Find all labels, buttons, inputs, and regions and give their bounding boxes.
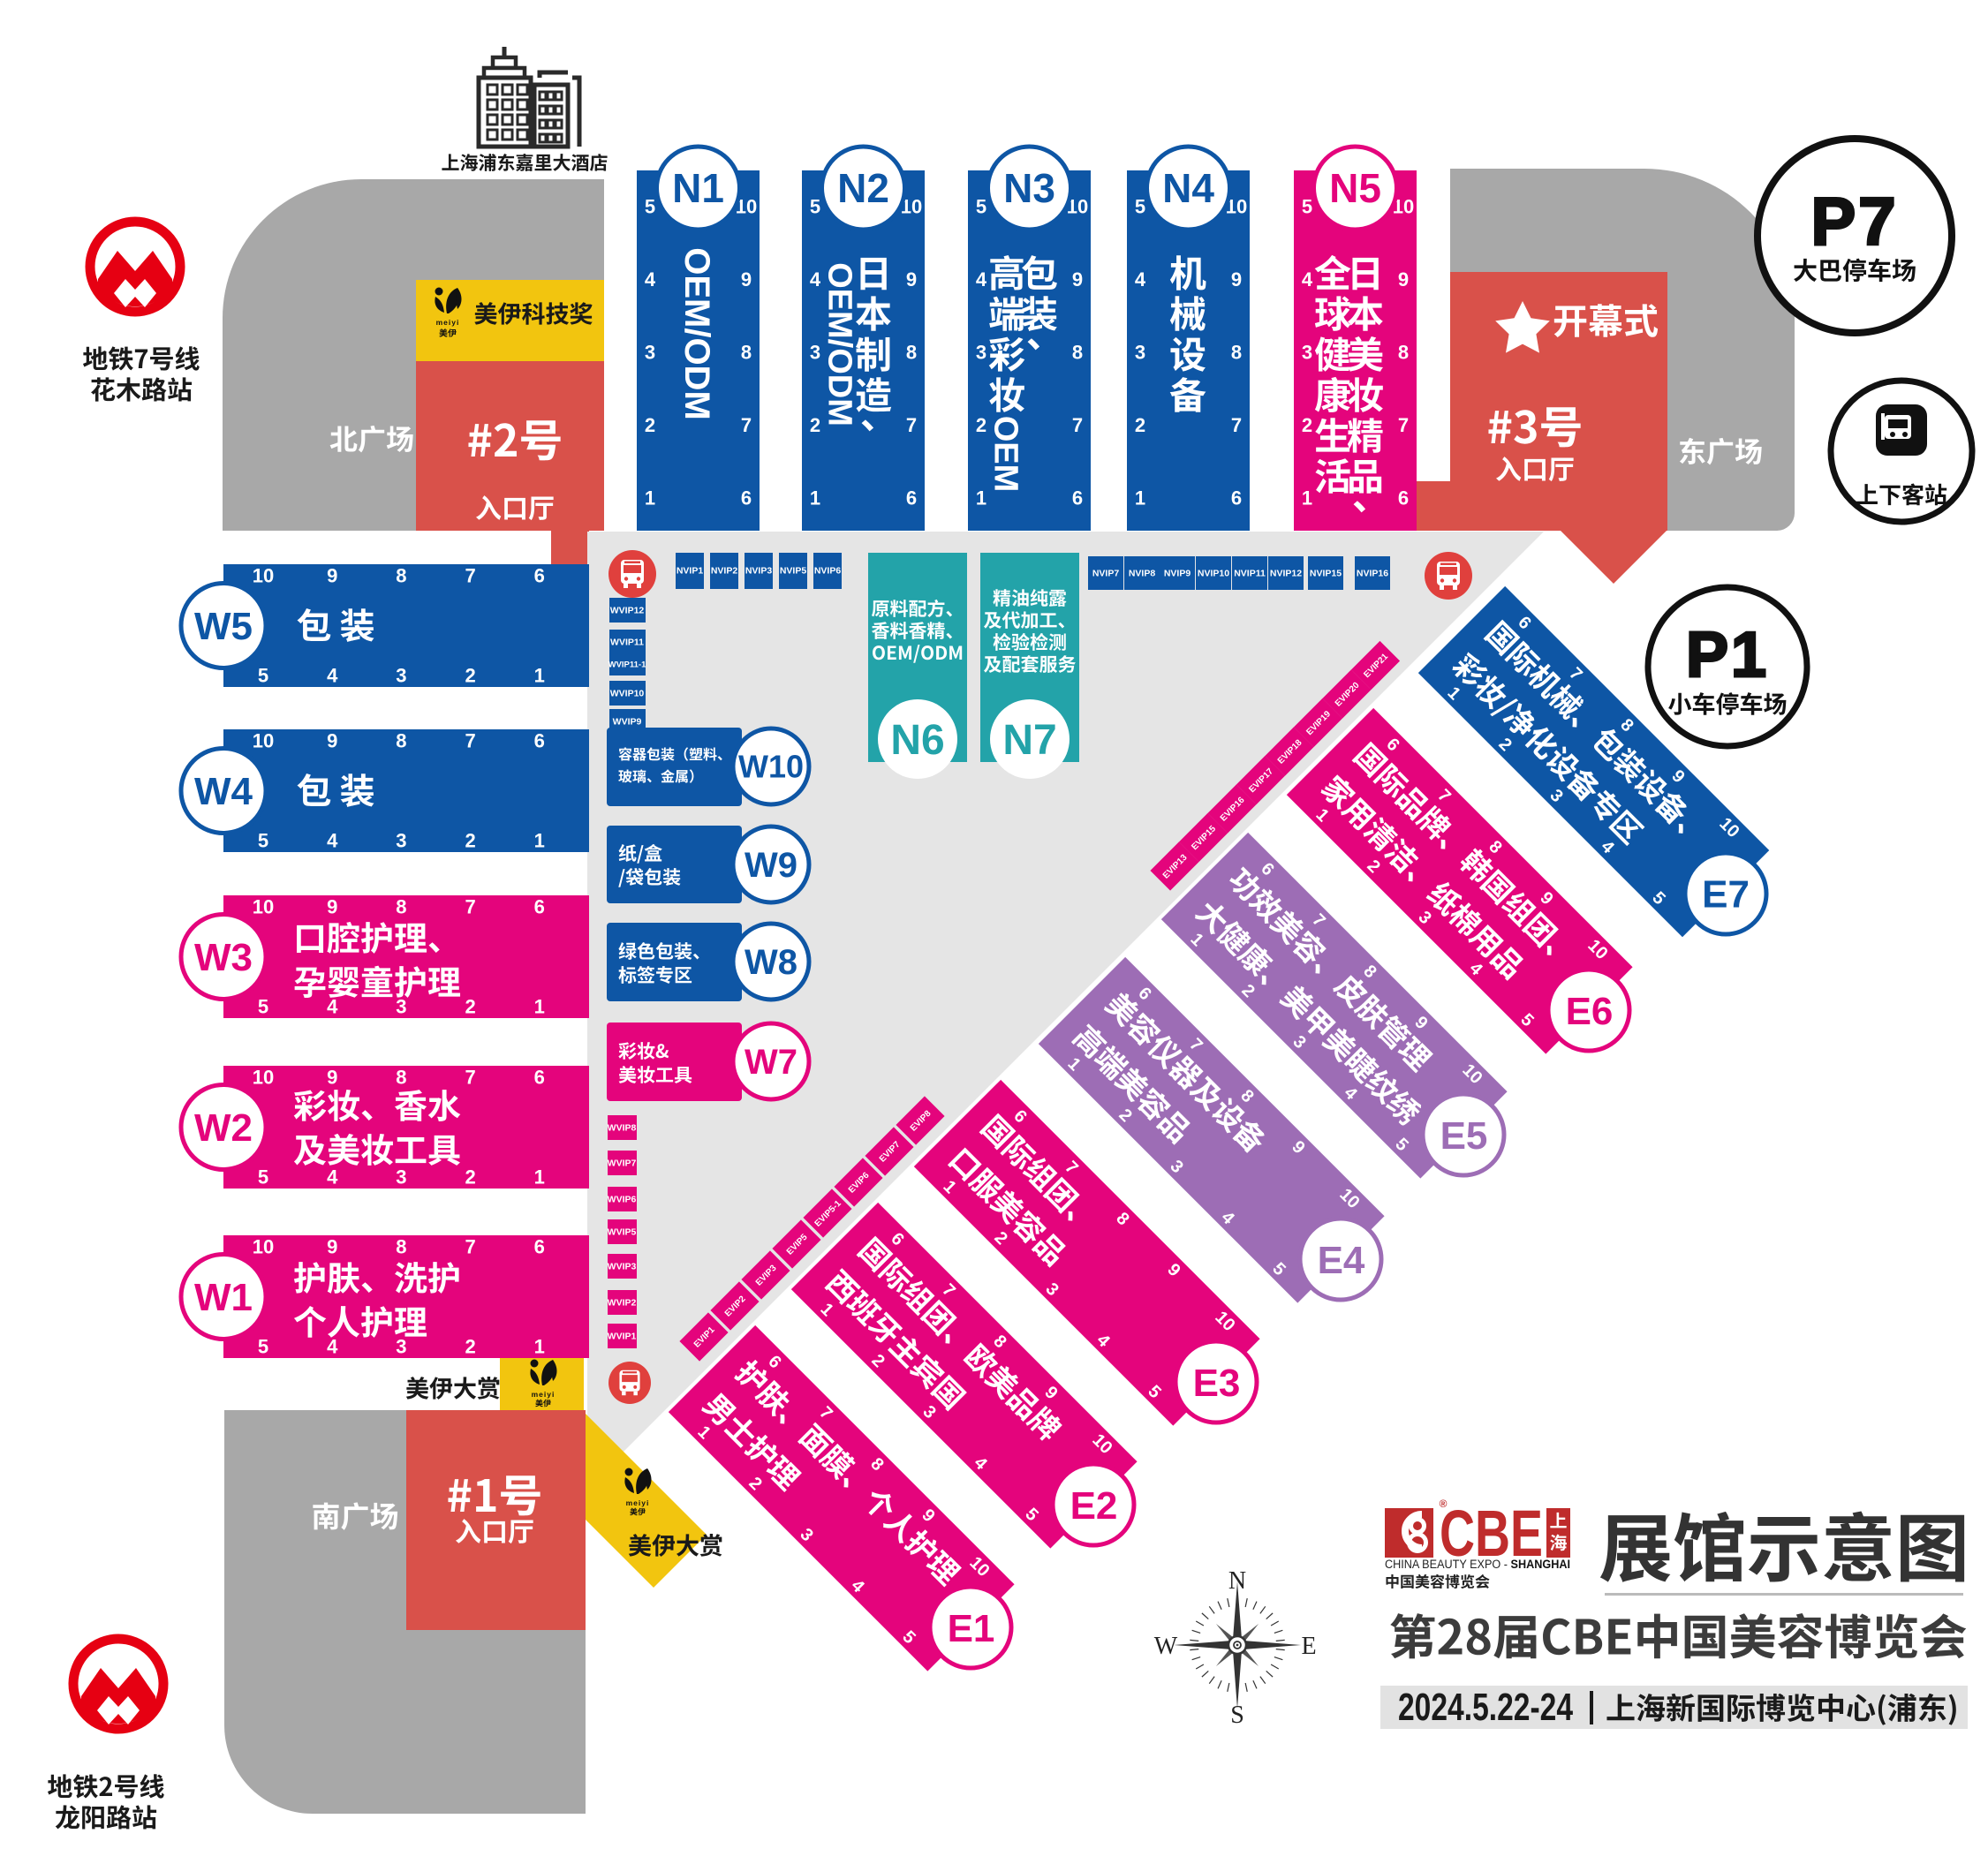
svg-text:WVIP6: WVIP6 [608, 1195, 637, 1205]
svg-text:N7: N7 [1002, 717, 1056, 764]
svg-text:7: 7 [1072, 414, 1083, 436]
svg-text:5: 5 [1135, 196, 1145, 218]
svg-text:W5: W5 [194, 605, 253, 648]
svg-text:3: 3 [1135, 342, 1145, 364]
svg-text:3: 3 [396, 830, 406, 852]
svg-text:W1: W1 [194, 1276, 253, 1319]
svg-text:W9: W9 [745, 846, 797, 885]
svg-text:N6: N6 [890, 717, 944, 764]
svg-text:1: 1 [810, 487, 820, 509]
svg-text:NVIP11: NVIP11 [1234, 569, 1266, 579]
svg-text:4: 4 [645, 268, 656, 291]
svg-text:2: 2 [1302, 414, 1312, 436]
svg-text:6: 6 [534, 896, 545, 918]
svg-text:S: S [1230, 1702, 1244, 1729]
svg-text:10: 10 [253, 565, 274, 587]
svg-text:WVIP10: WVIP10 [610, 689, 645, 699]
svg-text:5: 5 [1302, 196, 1312, 218]
svg-text:NVIP12: NVIP12 [1270, 569, 1302, 579]
svg-text:6: 6 [1231, 487, 1242, 509]
svg-text:P1: P1 [1686, 620, 1769, 691]
svg-text:NVIP16: NVIP16 [1357, 569, 1388, 579]
svg-text:N1: N1 [672, 165, 724, 211]
svg-text:E: E [1301, 1633, 1316, 1660]
svg-text:7: 7 [1231, 414, 1242, 436]
svg-text:5: 5 [258, 1166, 268, 1189]
svg-text:3: 3 [645, 342, 655, 364]
svg-text:2: 2 [976, 414, 986, 436]
svg-text:8: 8 [396, 730, 406, 752]
svg-text:8: 8 [396, 1236, 406, 1258]
svg-text:5: 5 [976, 196, 986, 218]
svg-text:P7: P7 [1811, 185, 1899, 260]
svg-text:4: 4 [327, 665, 338, 687]
svg-text:1: 1 [976, 487, 986, 509]
svg-text:N3: N3 [1003, 165, 1055, 211]
svg-text:5: 5 [258, 830, 268, 852]
svg-text:7: 7 [465, 1236, 475, 1258]
svg-text:6: 6 [741, 487, 752, 509]
svg-text:OEM/ODM: OEM/ODM [677, 247, 716, 420]
svg-text:2: 2 [465, 1336, 475, 1358]
svg-text:E6: E6 [1566, 990, 1614, 1033]
svg-text:2: 2 [810, 414, 820, 436]
svg-text:WVIP12: WVIP12 [610, 606, 645, 616]
svg-text:1: 1 [1135, 487, 1145, 509]
svg-text:W3: W3 [194, 936, 253, 979]
svg-text:5: 5 [645, 196, 655, 218]
svg-text:N5: N5 [1329, 165, 1381, 211]
svg-text:8: 8 [396, 896, 406, 918]
svg-text:7: 7 [1398, 414, 1409, 436]
svg-text:9: 9 [327, 730, 337, 752]
svg-text:NVIP15: NVIP15 [1310, 569, 1342, 579]
svg-text:E1: E1 [948, 1607, 995, 1650]
svg-text:W7: W7 [745, 1043, 797, 1082]
svg-text:7: 7 [906, 414, 917, 436]
svg-text:WVIP8: WVIP8 [608, 1123, 637, 1134]
svg-text:NVIP3: NVIP3 [745, 566, 773, 577]
svg-text:1: 1 [534, 1336, 545, 1358]
svg-text:10: 10 [253, 896, 274, 918]
svg-text:NVIP5: NVIP5 [780, 566, 807, 577]
svg-text:5: 5 [258, 996, 268, 1018]
svg-text:7: 7 [465, 730, 475, 752]
svg-text:WVIP3: WVIP3 [608, 1262, 637, 1272]
svg-text:3: 3 [1302, 342, 1312, 364]
svg-text:3: 3 [810, 342, 820, 364]
svg-text:W: W [1154, 1633, 1178, 1660]
svg-text:E7: E7 [1702, 873, 1750, 917]
svg-text:4: 4 [810, 268, 821, 291]
svg-text:4: 4 [976, 268, 987, 291]
svg-text:WVIP11: WVIP11 [610, 638, 644, 648]
svg-text:6: 6 [1398, 487, 1409, 509]
svg-text:WVIP9: WVIP9 [613, 717, 642, 728]
svg-text:NVIP9: NVIP9 [1164, 569, 1191, 579]
svg-text:2: 2 [465, 996, 475, 1018]
svg-text:5: 5 [258, 665, 268, 687]
svg-text:2: 2 [1135, 414, 1145, 436]
svg-text:3: 3 [396, 996, 406, 1018]
svg-text:1: 1 [534, 830, 545, 852]
svg-text:6: 6 [906, 487, 917, 509]
svg-text:4: 4 [327, 830, 338, 852]
svg-text:E5: E5 [1440, 1114, 1488, 1158]
svg-text:7: 7 [741, 414, 752, 436]
svg-text:4: 4 [327, 996, 338, 1018]
svg-text:9: 9 [327, 1236, 337, 1258]
svg-text:8: 8 [906, 342, 917, 364]
svg-text:1: 1 [1302, 487, 1312, 509]
svg-text:3: 3 [396, 665, 406, 687]
svg-text:E2: E2 [1070, 1484, 1118, 1528]
svg-text:2024.5.22-24: 2024.5.22-24 [1398, 1686, 1573, 1729]
svg-text:9: 9 [741, 268, 752, 291]
svg-text:WVIP2: WVIP2 [608, 1298, 637, 1309]
svg-text:10: 10 [253, 730, 274, 752]
svg-text:NVIP8: NVIP8 [1129, 569, 1156, 579]
svg-text:1: 1 [534, 996, 545, 1018]
svg-text:9: 9 [327, 565, 337, 587]
svg-text:4: 4 [1302, 268, 1313, 291]
svg-text:9: 9 [327, 1067, 337, 1089]
svg-text:1: 1 [534, 1166, 545, 1189]
svg-text:W4: W4 [194, 770, 253, 813]
svg-text:5: 5 [258, 1336, 268, 1358]
svg-text:9: 9 [1072, 268, 1083, 291]
svg-text:NVIP1: NVIP1 [677, 566, 704, 577]
svg-text:W10: W10 [738, 749, 804, 785]
svg-text:CHINA BEAUTY EXPO - SHANGHAI: CHINA BEAUTY EXPO - SHANGHAI [1385, 1558, 1570, 1571]
svg-text:WVIP5: WVIP5 [608, 1227, 637, 1238]
svg-text:N4: N4 [1162, 165, 1214, 211]
svg-text:3: 3 [396, 1166, 406, 1189]
svg-text:2: 2 [645, 414, 655, 436]
svg-text:10: 10 [253, 1236, 274, 1258]
svg-text:6: 6 [1072, 487, 1083, 509]
svg-text:4: 4 [327, 1166, 338, 1189]
svg-text:9: 9 [906, 268, 917, 291]
svg-text:E4: E4 [1318, 1239, 1365, 1282]
svg-text:4: 4 [1135, 268, 1146, 291]
svg-text:9: 9 [1231, 268, 1242, 291]
svg-text:NVIP10: NVIP10 [1198, 569, 1229, 579]
svg-text:6: 6 [534, 1236, 545, 1258]
svg-text:3: 3 [976, 342, 986, 364]
svg-text:8: 8 [741, 342, 752, 364]
svg-text:8: 8 [396, 1067, 406, 1089]
svg-text:OEM: OEM [987, 416, 1024, 493]
svg-text:6: 6 [534, 565, 545, 587]
svg-text:8: 8 [396, 565, 406, 587]
svg-text:W2: W2 [194, 1106, 253, 1150]
svg-text:7: 7 [465, 565, 475, 587]
svg-text:8: 8 [1072, 342, 1083, 364]
svg-text:2: 2 [465, 830, 475, 852]
svg-text:9: 9 [1398, 268, 1409, 291]
svg-text:E3: E3 [1193, 1362, 1241, 1405]
svg-text:6: 6 [534, 1067, 545, 1089]
svg-text:WVIP1: WVIP1 [608, 1332, 637, 1342]
svg-text:9: 9 [327, 896, 337, 918]
svg-text:WVIP7: WVIP7 [608, 1158, 637, 1169]
svg-text:8: 8 [1398, 342, 1409, 364]
svg-text:3: 3 [396, 1336, 406, 1358]
svg-text:7: 7 [465, 1067, 475, 1089]
svg-text:5: 5 [810, 196, 820, 218]
svg-text:6: 6 [534, 730, 545, 752]
svg-text:WVIP11-1: WVIP11-1 [608, 660, 646, 669]
svg-text:7: 7 [465, 896, 475, 918]
svg-text:8: 8 [1231, 342, 1242, 364]
svg-text:1: 1 [645, 487, 655, 509]
svg-text:2: 2 [465, 1166, 475, 1189]
svg-text:NVIP2: NVIP2 [711, 566, 738, 577]
svg-text:N: N [1228, 1567, 1246, 1595]
svg-text:2: 2 [465, 665, 475, 687]
svg-text:N2: N2 [837, 165, 889, 211]
svg-text:NVIP7: NVIP7 [1092, 569, 1120, 579]
svg-text:W8: W8 [745, 943, 797, 982]
svg-text:OEM/ODM: OEM/ODM [821, 262, 858, 426]
svg-text:1: 1 [534, 665, 545, 687]
svg-text:4: 4 [327, 1336, 338, 1358]
svg-text:NVIP6: NVIP6 [814, 566, 842, 577]
svg-text:10: 10 [253, 1067, 274, 1089]
